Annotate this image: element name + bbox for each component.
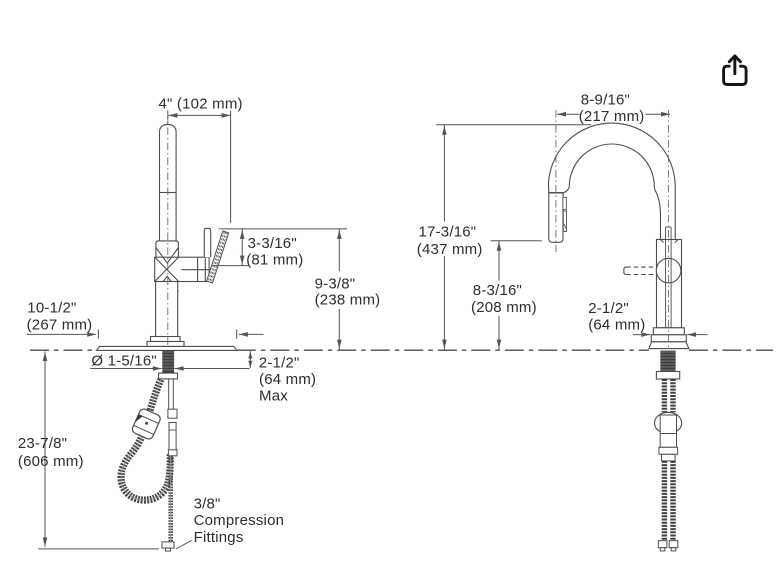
svg-text:(267 mm): (267 mm) <box>27 317 93 334</box>
svg-text:(437 mm): (437 mm) <box>417 241 483 258</box>
svg-text:(606 mm): (606 mm) <box>18 453 84 470</box>
svg-text:(64 mm): (64 mm) <box>588 316 645 333</box>
svg-text:10-1/2": 10-1/2" <box>27 299 76 316</box>
svg-text:(217 mm): (217 mm) <box>579 108 645 125</box>
svg-text:3/8": 3/8" <box>194 496 221 513</box>
svg-text:23-7/8": 23-7/8" <box>18 435 67 452</box>
svg-text:Fittings: Fittings <box>194 529 244 546</box>
svg-text:Ø 1-5/16": Ø 1-5/16" <box>91 353 156 370</box>
svg-text:Max: Max <box>259 387 288 404</box>
svg-text:8-3/16": 8-3/16" <box>473 282 522 299</box>
svg-text:2-1/2": 2-1/2" <box>588 300 629 317</box>
svg-text:17-3/16": 17-3/16" <box>419 223 477 240</box>
svg-text:8-9/16": 8-9/16" <box>581 91 630 108</box>
svg-text:(64 mm): (64 mm) <box>259 371 316 388</box>
svg-text:(81 mm): (81 mm) <box>246 251 303 268</box>
svg-text:4" (102 mm): 4" (102 mm) <box>159 96 243 113</box>
svg-text:Compression: Compression <box>194 512 285 529</box>
svg-text:(208 mm): (208 mm) <box>471 299 537 316</box>
svg-text:2-1/2": 2-1/2" <box>259 354 300 371</box>
svg-text:3-3/16": 3-3/16" <box>248 235 297 252</box>
svg-text:9-3/8": 9-3/8" <box>315 275 356 292</box>
svg-text:(238 mm): (238 mm) <box>315 292 381 309</box>
